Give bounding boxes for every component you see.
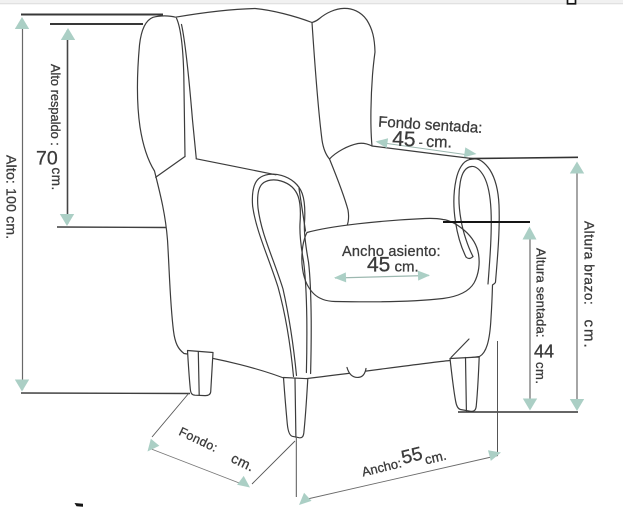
svg-text:Alto: 100 cm.: Alto: 100 cm. [4,155,20,239]
svg-text:cm.: cm. [423,448,448,468]
svg-text:55: 55 [399,444,424,469]
svg-text:Altura sentada:: Altura sentada: [534,248,549,338]
svg-text:cm.: cm. [229,450,258,475]
svg-text:cm.: cm. [533,362,548,384]
svg-text:cm.: cm. [581,320,598,350]
svg-text:Ancho:: Ancho: [360,455,403,479]
svg-text:Alto respaldo :: Alto respaldo : [48,64,63,146]
svg-text:Fondo:: Fondo: [177,425,220,455]
svg-text:cm.: cm. [49,168,64,191]
svg-text:70: 70 [36,148,58,170]
svg-text:Altura brazo:: Altura brazo: [582,221,597,305]
svg-text:44: 44 [534,342,554,362]
